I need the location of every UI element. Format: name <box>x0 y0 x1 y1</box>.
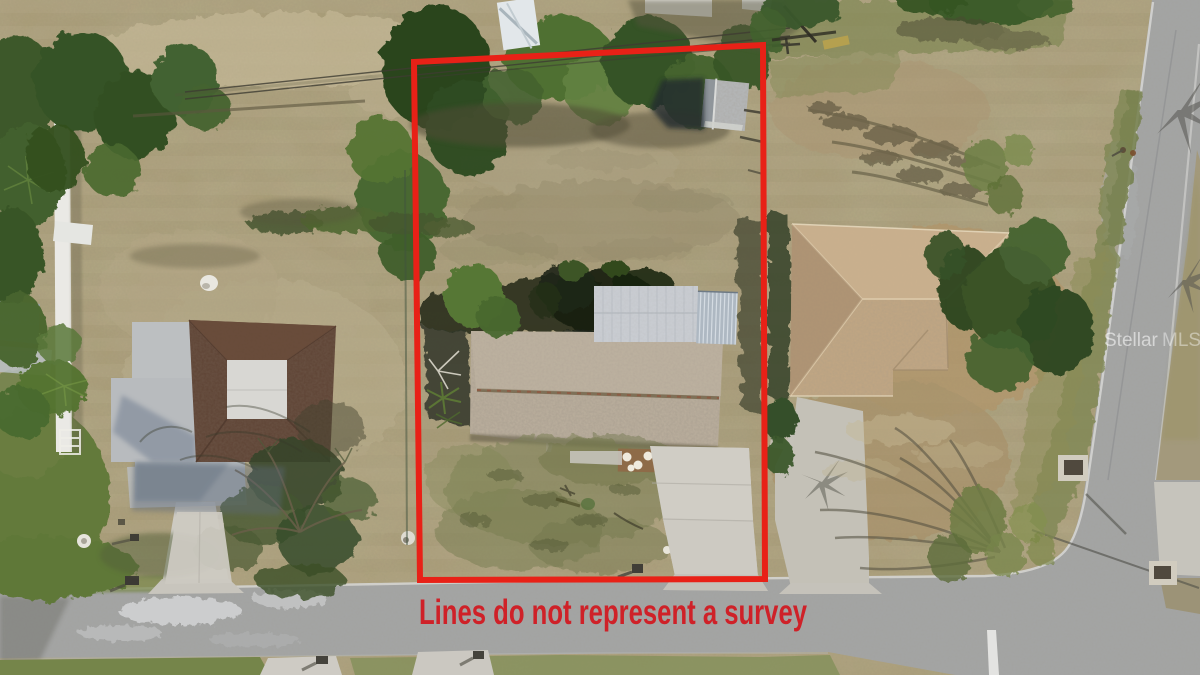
svg-text:Stellar: Stellar <box>1104 330 1159 351</box>
svg-text:MLS: MLS <box>1162 330 1200 351</box>
svg-text:Lines do not represent a surve: Lines do not represent a survey <box>419 593 807 632</box>
